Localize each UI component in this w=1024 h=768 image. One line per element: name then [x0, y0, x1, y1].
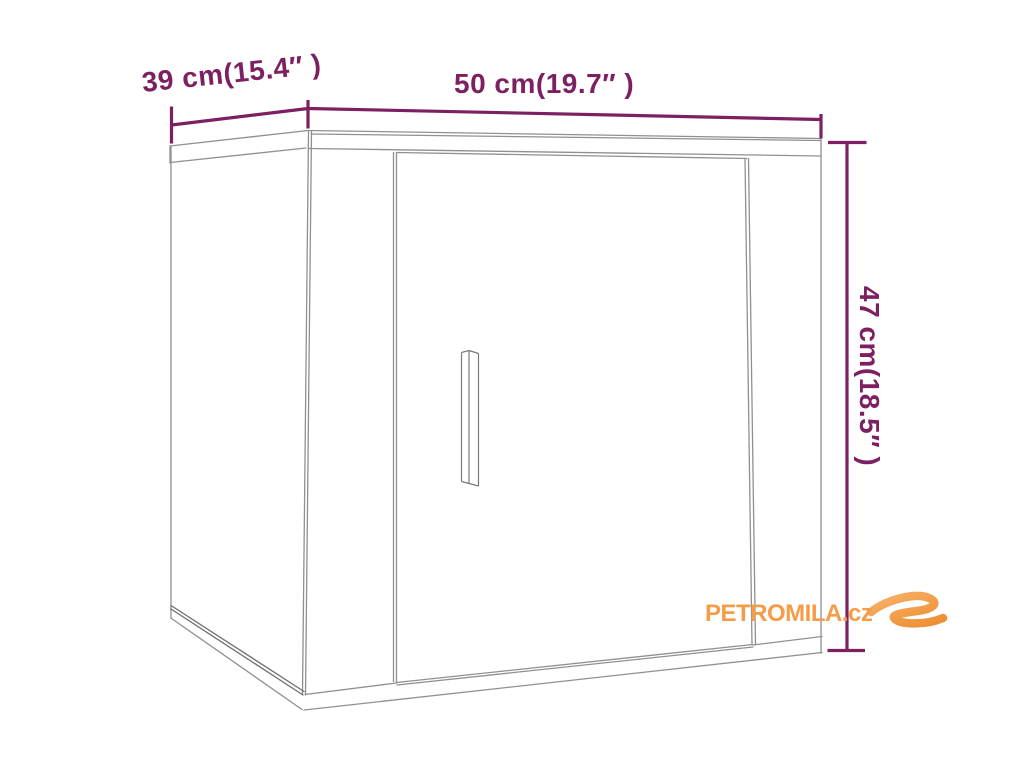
- brand-watermark: PETROMILA.cz: [705, 600, 872, 628]
- dimension-label-height: 47 cm(18.5″ ): [853, 286, 885, 498]
- brand-swoosh-icon: [871, 596, 943, 623]
- product-dimension-diagram: 39 cm(15.4″ ) 50 cm(19.7″ ) 47 cm(18.5″ …: [0, 0, 1024, 768]
- brand-text: PETROMILA.cz: [705, 600, 872, 628]
- cabinet-door: [394, 153, 756, 686]
- dimension-lines: [172, 100, 867, 651]
- dimension-label-width: 50 cm(19.7″ ): [454, 68, 634, 100]
- door-handle: [462, 351, 479, 487]
